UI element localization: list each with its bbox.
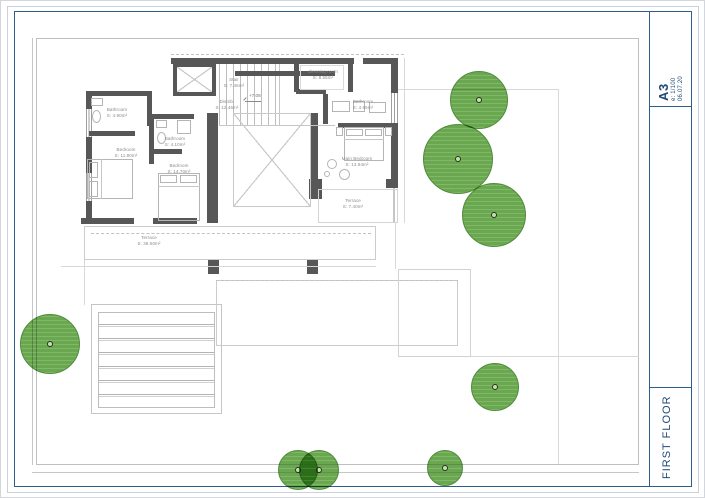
pillow [180, 175, 197, 183]
toilet [92, 110, 101, 123]
room-area: S: 13.94m² [342, 162, 372, 168]
room-name: Bathroom [353, 99, 373, 105]
chair [327, 159, 337, 169]
room-area: S: 8.55m² [308, 75, 338, 81]
terrace-line [61, 266, 376, 267]
wall [89, 131, 135, 136]
wall [149, 114, 154, 164]
sink [91, 98, 103, 106]
room-area: S: 11.80m² [115, 153, 138, 159]
bed-line [158, 186, 200, 187]
tree-trunk [491, 212, 497, 218]
tree [450, 71, 508, 129]
wall [391, 58, 398, 93]
pillow [160, 175, 177, 183]
room-area: S: 7.40m² [343, 204, 363, 210]
tree [423, 124, 493, 194]
room-name: Main Bedroom [342, 156, 372, 162]
tree [20, 314, 80, 374]
room-label-stair: Stair S: 7.46m² [224, 77, 244, 89]
terrace-outline [84, 226, 376, 260]
wall [207, 113, 218, 223]
sheet-scale: e: 1/100 [671, 15, 679, 101]
level-mark: +7.08 [249, 93, 261, 98]
room-area: S: 4.90m² [107, 113, 127, 119]
wall [154, 114, 194, 119]
roof-overhang-line [404, 58, 405, 223]
tree-trunk [455, 156, 461, 162]
wall [81, 218, 134, 224]
room-label-bathroom-right: Bathroom S: 4.95m² [353, 99, 373, 111]
window [391, 93, 398, 123]
room-area: S: 4.95m² [353, 105, 373, 111]
room-name: Bathroom [107, 107, 127, 113]
pillow [346, 129, 363, 136]
sink [156, 120, 167, 128]
pillow [365, 129, 382, 136]
pergola-slat [99, 324, 214, 327]
room-label-bathroom-topleft: Bathroom S: 4.90m² [107, 107, 127, 119]
tree-trunk [316, 467, 322, 473]
room-label-bedroom-left: Bedroom S: 11.80m² [115, 147, 138, 159]
vanity [332, 101, 350, 112]
room-label-distrib: Distrib. S: 12.46m² [215, 99, 238, 111]
tree [471, 363, 519, 411]
shower [177, 120, 191, 134]
room-label-terrace-main: Terrace S: 38.60m² [137, 235, 160, 247]
tree-trunk [476, 97, 482, 103]
site-line [32, 38, 33, 465]
tree [462, 183, 526, 247]
room-area: S: 7.46m² [224, 83, 244, 89]
terrace-dashed [91, 233, 371, 234]
tree-trunk [47, 341, 53, 347]
site-line [458, 356, 639, 357]
room-name: Bedroom [167, 163, 190, 169]
titleblock-info: A3 e: 1/100 06.07.20 [657, 15, 686, 101]
nightstand [385, 127, 392, 136]
side-table [324, 171, 330, 177]
floor-title: FIRST FLOOR [661, 369, 673, 479]
void-cross [233, 113, 311, 207]
paving-line [395, 223, 396, 269]
room-area: S: 12.46m² [215, 105, 238, 111]
elevator-cross [177, 67, 212, 92]
wall [391, 123, 398, 187]
pillow [89, 181, 98, 197]
wall [154, 149, 182, 154]
roof-overhang-line [171, 54, 404, 55]
nightstand [336, 127, 343, 136]
wall-pier [386, 179, 398, 188]
room-label-main-bedroom: Main Bedroom S: 13.94m² [342, 156, 372, 168]
room-label-dressing: dressing room S: 8.55m² [308, 69, 338, 81]
tree-trunk [442, 465, 448, 471]
wall [348, 59, 353, 92]
elevator-shaft [173, 63, 216, 96]
pergola-slat [99, 338, 214, 341]
paving-area [398, 269, 471, 357]
floor-plan-sheet: A3 e: 1/100 06.07.20 FIRST FLOOR [0, 0, 705, 498]
room-label-bedroom-mid: Bedroom S: 14.70m² [167, 163, 190, 175]
room-name: Bathroom [165, 136, 185, 142]
room-area: S: 14.70m² [167, 169, 190, 175]
pergola-slat [99, 352, 214, 355]
pergola-slat [99, 394, 214, 397]
room-area: S: 38.60m² [137, 241, 160, 247]
titleblock-top-cell-line [649, 106, 692, 107]
titleblock-divider [649, 11, 650, 487]
pergola-slat [99, 380, 214, 383]
tree [299, 450, 339, 490]
wall [323, 94, 328, 124]
wall-opening [354, 58, 363, 64]
bed-line [344, 139, 384, 140]
sheet-date: 06.07.20 [678, 15, 686, 101]
room-name: dressing room [308, 69, 338, 75]
tree [427, 450, 463, 486]
bed-line [101, 159, 102, 199]
room-area: S: 4.10m² [165, 142, 185, 148]
terrace-line [84, 260, 85, 305]
wall [86, 91, 148, 96]
site-line [558, 89, 559, 464]
room-name: Bedroom [115, 147, 138, 153]
pergola-slat [99, 366, 214, 369]
wall [311, 113, 318, 183]
room-label-bathroom-mid: Bathroom S: 4.10m² [165, 136, 185, 148]
tree-trunk [492, 384, 498, 390]
room-name: Terrace [343, 198, 363, 204]
chair [339, 169, 350, 180]
sheet-format: A3 [657, 15, 671, 101]
room-label-terrace-right: Terrace S: 7.40m² [343, 198, 363, 210]
pillow [89, 162, 98, 178]
